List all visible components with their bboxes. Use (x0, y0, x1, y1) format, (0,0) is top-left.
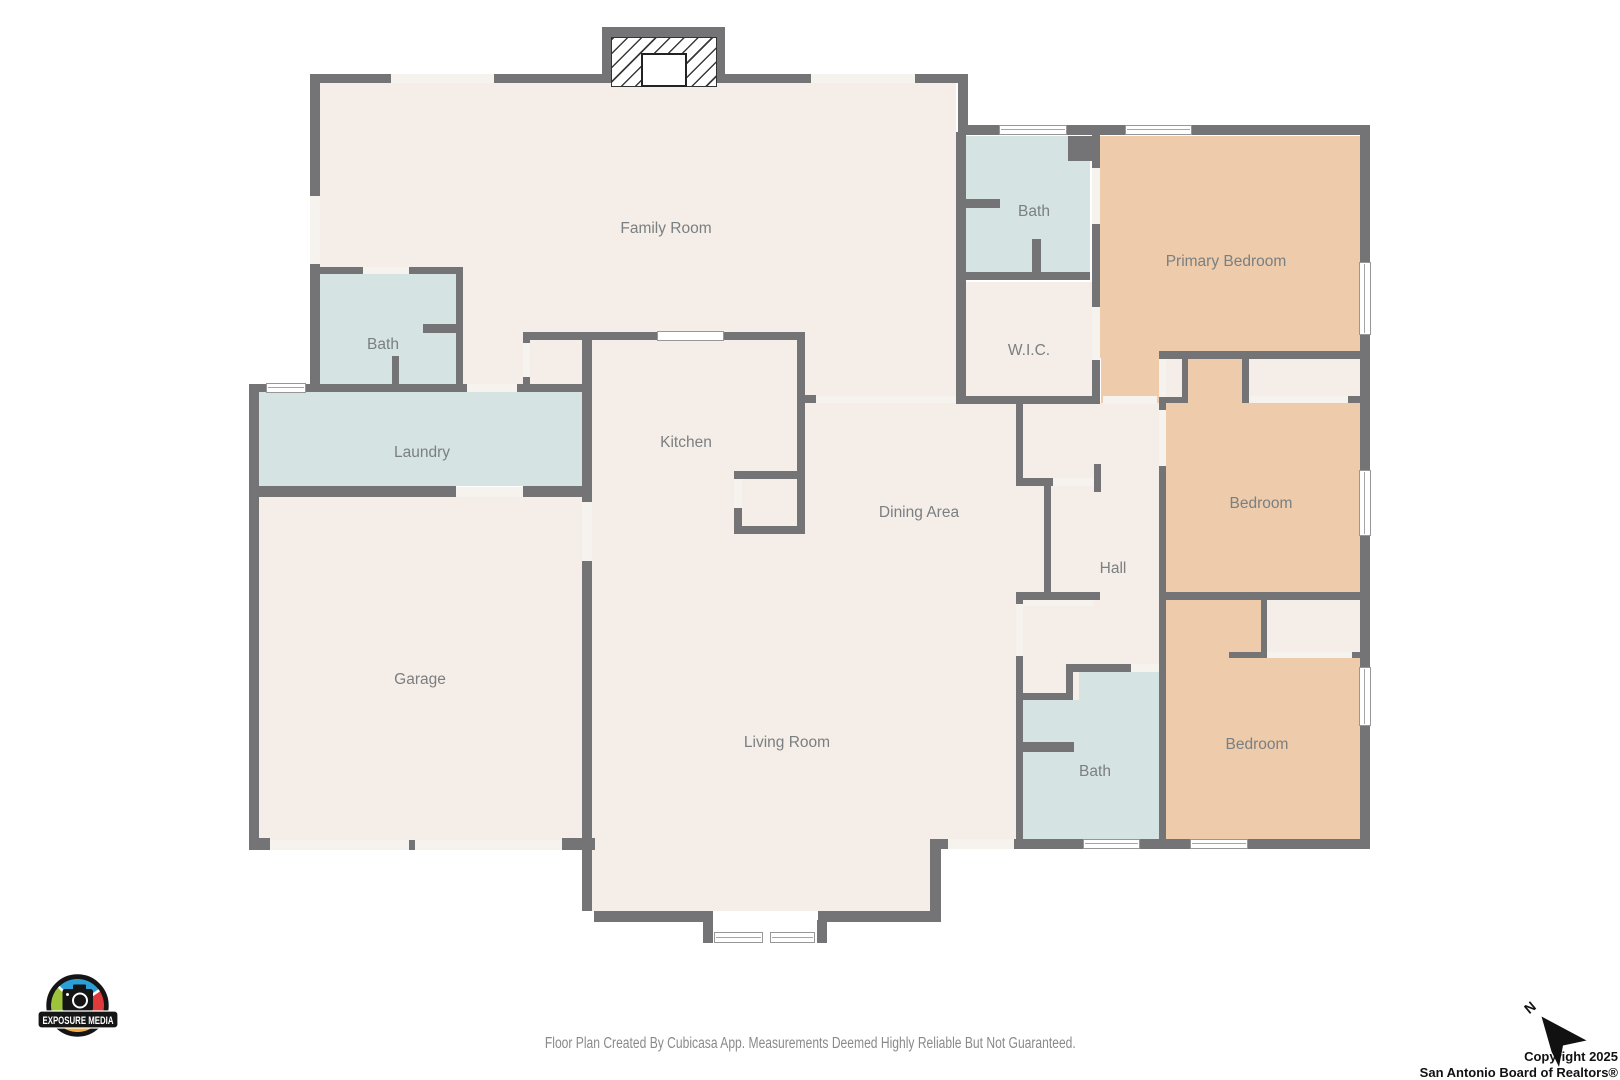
svg-text:N: N (1521, 998, 1539, 1017)
svg-text:EXPOSURE MEDIA: EXPOSURE MEDIA (43, 1015, 114, 1027)
